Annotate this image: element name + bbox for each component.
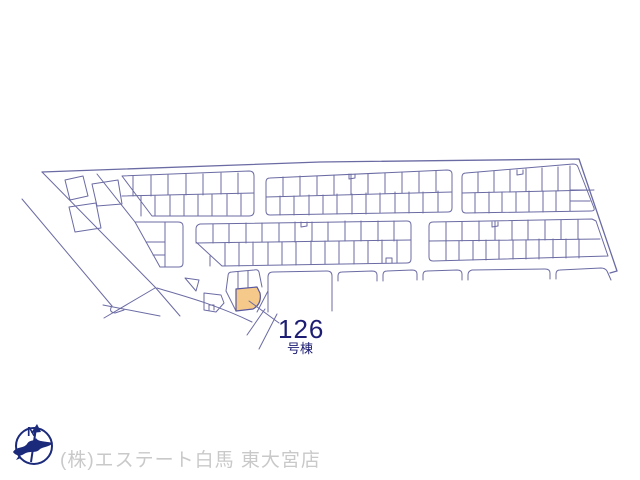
unit-number-text: 126: [278, 314, 324, 344]
lot-block-row2-left: [135, 222, 183, 267]
lot-block-row1-right: [462, 164, 594, 213]
company-watermark: (株)エステート白馬 東大宮店: [60, 449, 321, 471]
unit-number-label: 126 号棟: [278, 314, 324, 356]
site-plan-map: 126 号棟 N (株)エステート白馬 東大宮店: [0, 0, 640, 480]
lot-block-row1-middle: [266, 170, 452, 215]
lot-block-row2-middle: [196, 221, 411, 266]
label-leader-line: [249, 301, 279, 323]
junction-lots: [185, 278, 224, 312]
lot-block-row2-right: [429, 219, 608, 261]
compass-north-icon: N: [13, 424, 53, 464]
highlighted-lot-126[interactable]: [236, 287, 260, 311]
lot-row3-frontages: [257, 268, 611, 312]
site-plan-page: 126 号棟 N (株)エステート白馬 東大宮店: [0, 0, 640, 480]
unit-suffix-text: 号棟: [287, 341, 313, 356]
lot-block-row1-left: [122, 171, 254, 216]
